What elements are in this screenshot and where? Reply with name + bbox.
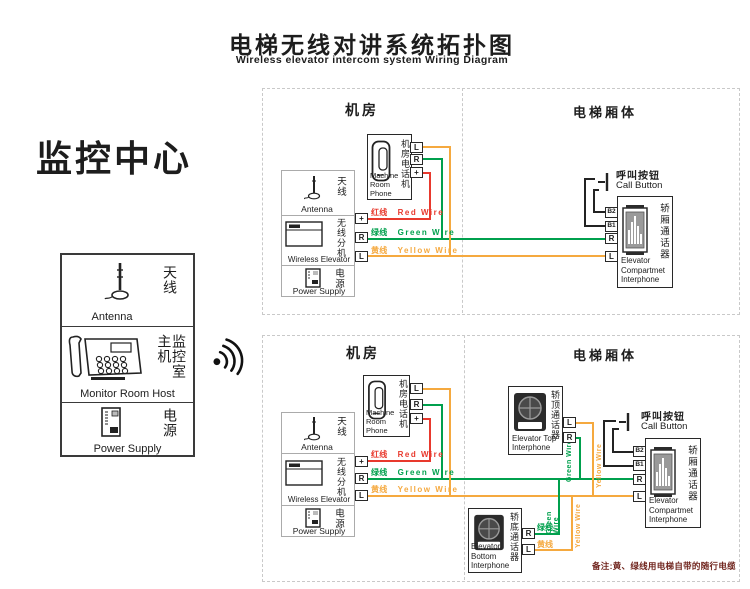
machine-room-phone-label-en: Machine Room Phone [366, 408, 409, 435]
monitor-antenna-label-zh: 天线 [162, 265, 177, 295]
call-button-wire [603, 465, 633, 467]
monitor-antenna-row: 天线 Antenna [62, 255, 193, 327]
yellow-wire [422, 388, 451, 390]
call-button-wire [584, 225, 605, 227]
unit-wireless-row: 无线分机 Wireless Elevator [282, 216, 354, 266]
monitor-antenna-label-en: Antenna [62, 311, 162, 323]
green-wire-short-label: 绿线 [537, 522, 553, 533]
bottom-machine-room-header: 机房 [313, 343, 413, 363]
terminal-r: R [633, 474, 646, 485]
elevator-top-interphone-label-en: Elevator Top Interphone [512, 434, 556, 453]
terminal-l: L [522, 544, 535, 555]
compartment-interphone-box: 轿厢通话器 Elevator Compartmet Interphone [645, 438, 701, 528]
call-button-wire [584, 178, 586, 227]
terminal-plus: + [355, 213, 368, 224]
monitor-power-label-zh: 电源 [162, 408, 177, 438]
terminal-r: R [522, 528, 535, 539]
bottom-call-button-label-en: Call Button [641, 421, 687, 432]
power-supply-icon [305, 268, 321, 288]
terminal-r: R [410, 399, 423, 410]
monitor-host-label-zh: 监控室主机 [157, 334, 186, 392]
yellow-wire [571, 497, 573, 550]
unit-power-label-en: Power Supply [282, 286, 356, 296]
call-button-wire [603, 420, 616, 422]
elevator-bottom-interphone-box: 轿底通话器 Elevator Bottom Interphone [468, 508, 522, 573]
monitor-center-box: 天线 Antenna 监控室主机 Monitor Room Host [60, 253, 195, 457]
red-wire-label: 红线Red Wire [371, 207, 444, 218]
wireless-unit-box: 天线 Antenna 无线分机 Wireless Elevator 电源 Pow… [281, 412, 355, 537]
monitor-host-label-en: Monitor Room Host [62, 388, 193, 400]
compartment-interphone-box: 轿厢通话器 Elevator Compartmet Interphone [617, 196, 673, 288]
green-wire [368, 238, 605, 240]
yellow-wire-label: 黄线Yellow Wire [371, 245, 459, 256]
terminal-l: L [355, 251, 368, 262]
terminal-r: R [410, 154, 423, 165]
top-elevator-car-header: 电梯厢体 [540, 102, 670, 121]
elevator-bottom-interphone-label-en: Elevator Bottom Interphone [471, 542, 521, 571]
red-wire [368, 460, 431, 462]
terminal-l: L [410, 142, 423, 153]
yellow-wire-label: 黄线Yellow Wire [371, 484, 459, 495]
antenna-icon [304, 415, 324, 443]
yellow-wire [449, 388, 451, 497]
call-button-wire [584, 178, 595, 180]
terminal-l: L [633, 491, 646, 502]
green-wire-vertical-label: Green Wire [566, 438, 573, 482]
machine-room-phone-box: 机房电话机 Machine Room Phone [363, 375, 410, 437]
antenna-icon [304, 174, 324, 202]
terminal-l: L [410, 383, 423, 394]
unit-wireless-row: 无线分机 Wireless Elevator [282, 454, 354, 506]
compartment-interphone-label-en: Elevator Compartmet Interphone [621, 256, 665, 285]
green-wire [422, 404, 443, 406]
top-call-button-label-en: Call Button [616, 180, 662, 191]
green-wire-label: 绿线Green Wire [371, 467, 455, 478]
yellow-wire [449, 146, 451, 257]
yellow-wire-vertical-label: Yellow Wire [596, 428, 603, 488]
call-button-wire [612, 451, 633, 453]
green-wire [579, 437, 581, 480]
terminal-l: L [563, 417, 576, 428]
monitor-center-heading: 监控中心 [36, 130, 192, 182]
yellow-wire [422, 146, 451, 148]
call-button-wire [593, 189, 595, 212]
desk-phone-icon [67, 333, 143, 383]
terminal-b2: B2 [605, 207, 618, 218]
red-wire-label: 红线Red Wire [371, 449, 444, 460]
yellow-wire-vertical-label: Yellow Wire [575, 498, 582, 548]
terminal-plus: + [410, 413, 423, 424]
call-button-wire [593, 211, 605, 213]
unit-antenna-label-zh: 天线 [335, 176, 345, 197]
call-button-wire [603, 420, 605, 466]
terminal-r: R [605, 233, 618, 244]
elevator-top-interphone-box: 轿顶通话器 Elevator Top Interphone [508, 386, 563, 455]
wireless-unit-box: 天线 Antenna 无线分机 Wireless Elevator 电源 Pow… [281, 170, 355, 297]
monitor-power-row: 电源 Power Supply [62, 403, 193, 457]
terminal-b1: B1 [605, 221, 618, 232]
speaker-interphone-icon [513, 392, 547, 432]
power-supply-icon [98, 406, 124, 438]
unit-antenna-label-en: Antenna [282, 204, 352, 214]
terminal-r: R [355, 473, 368, 484]
monitor-power-label-en: Power Supply [62, 443, 193, 455]
machine-room-phone-box: 机房电话机 Machine Room Phone [367, 134, 412, 200]
yellow-wire [592, 422, 594, 497]
unit-antenna-label-zh: 天线 [335, 416, 345, 437]
footnote: 备注:黄、绿线用电梯自带的随行电缆 [592, 560, 736, 572]
red-wire [422, 172, 431, 174]
radio-waves-icon [204, 331, 251, 382]
unit-power-label-en: Power Supply [282, 526, 356, 536]
red-wire [368, 218, 431, 220]
unit-wireless-label-en: Wireless Elevator [282, 255, 356, 264]
compartment-interphone-label-en: Elevator Compartmet Interphone [649, 496, 693, 525]
power-supply-icon [305, 508, 321, 528]
terminal-plus: + [355, 456, 368, 467]
terminal-plus: + [410, 167, 423, 178]
red-wire [422, 418, 431, 420]
terminal-l: L [355, 490, 368, 501]
top-section-divider [462, 88, 463, 313]
compartment-interphone-icon [622, 204, 648, 256]
yellow-wire-short-label: 黄线 [537, 539, 553, 550]
call-button-icon [618, 410, 632, 434]
bottom-elevator-car-header: 电梯厢体 [540, 345, 670, 364]
top-machine-room-header: 机房 [312, 100, 412, 120]
unit-antenna-row: 天线 Antenna [282, 413, 354, 454]
page-subtitle: Wireless elevator intercom system Wiring… [212, 54, 532, 66]
unit-antenna-label-en: Antenna [282, 442, 352, 452]
terminal-b2: B2 [633, 446, 646, 457]
unit-power-row: 电源 Power Supply [282, 266, 354, 297]
green-wire [422, 158, 443, 160]
wireless-device-icon [285, 221, 323, 247]
call-button-wire [612, 428, 614, 452]
machine-room-phone-label-en: Machine Room Phone [370, 171, 411, 198]
unit-wireless-label-en: Wireless Elevator [282, 495, 356, 504]
wireless-device-icon [285, 460, 323, 486]
call-button-icon [597, 170, 611, 194]
green-wire-label: 绿线Green Wire [371, 227, 455, 238]
unit-antenna-row: 天线 Antenna [282, 171, 354, 216]
unit-power-row: 电源 Power Supply [282, 506, 354, 537]
antenna-icon [104, 260, 136, 304]
wiring-diagram-page: 电梯无线对讲系统拓扑图 Wireless elevator intercom s… [0, 0, 750, 589]
terminal-r: R [563, 432, 576, 443]
terminal-r: R [355, 232, 368, 243]
monitor-host-row: 监控室主机 Monitor Room Host [62, 327, 193, 403]
terminal-l: L [605, 251, 618, 262]
terminal-b1: B1 [633, 460, 646, 471]
bottom-section-divider [464, 335, 465, 580]
compartment-interphone-icon [650, 446, 676, 498]
